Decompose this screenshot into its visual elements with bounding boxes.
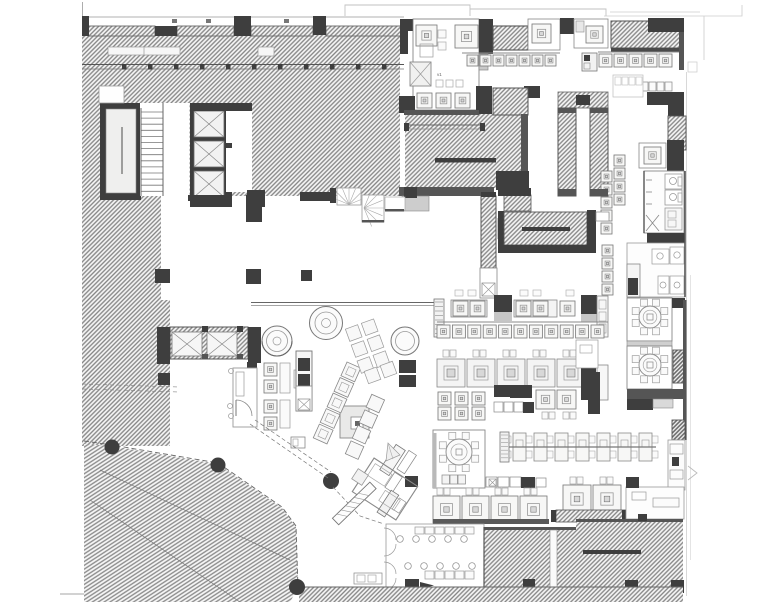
svg-text:v1: v1 [437, 72, 442, 77]
